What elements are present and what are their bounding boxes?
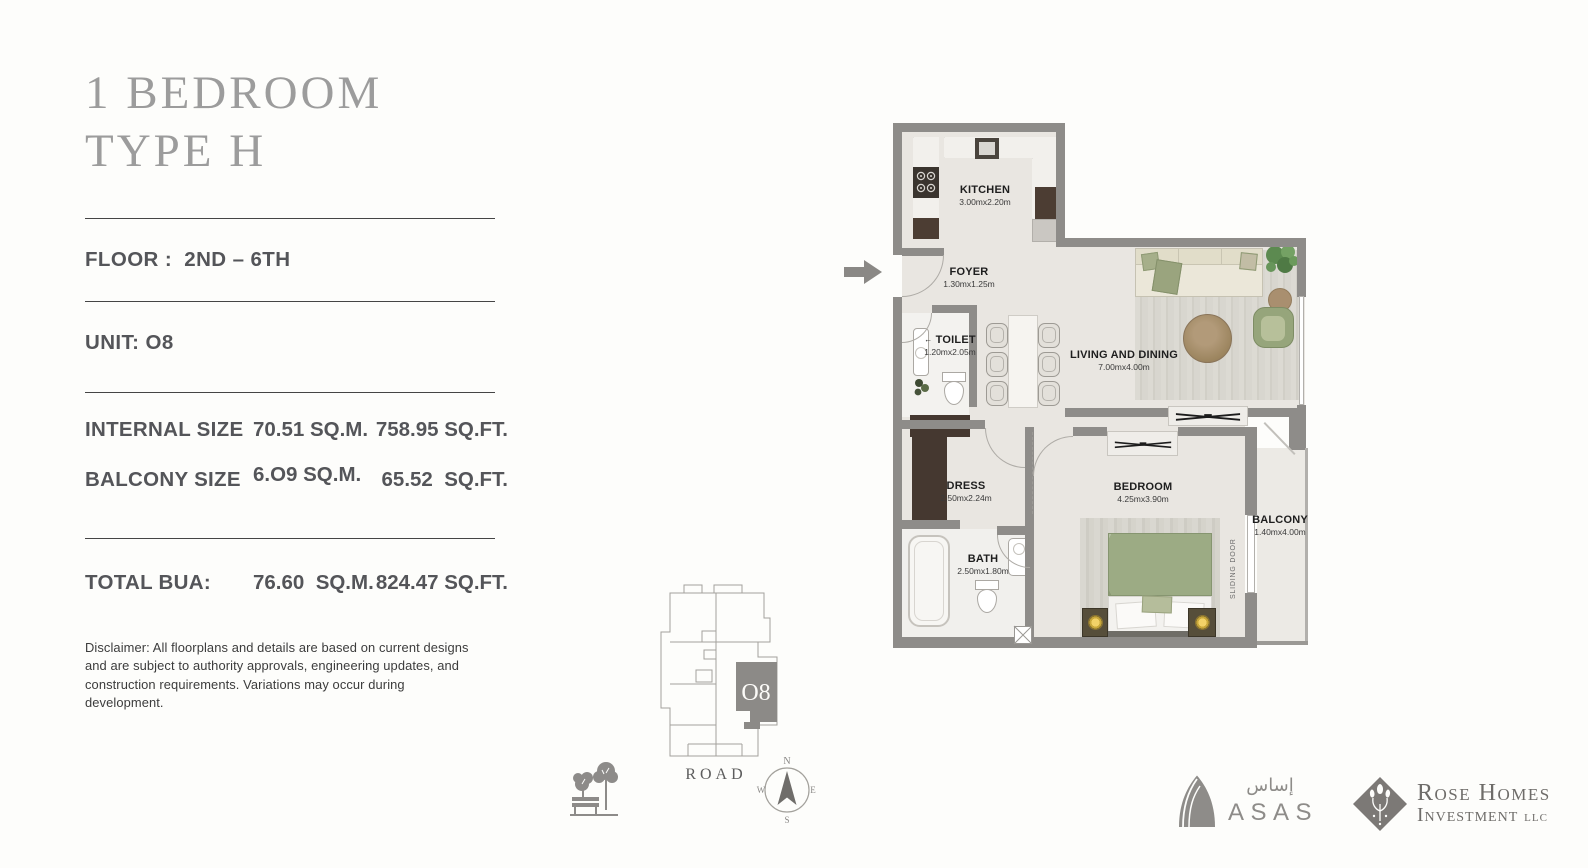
wall <box>1245 593 1257 639</box>
wall <box>1056 238 1305 247</box>
floor-balcony <box>1257 448 1307 641</box>
wall <box>1289 417 1306 450</box>
plant-icon <box>1261 243 1301 287</box>
balcony-edge <box>1257 641 1308 645</box>
wall <box>1056 123 1065 246</box>
asas-arabic-name: إساس <box>1222 776 1318 796</box>
balcony-size-sqft: 65.52 SQ.FT. <box>330 468 508 492</box>
floor-row: FLOOR : 2ND – 6TH <box>85 248 290 272</box>
bed-cushion <box>1142 595 1173 613</box>
tv-console-living <box>1168 406 1248 426</box>
disclaimer-text: Disclaimer: All floorplans and details a… <box>85 639 485 712</box>
divider-line <box>85 392 495 393</box>
nightstand-lamp <box>1082 608 1108 637</box>
asas-latin-name: ASAS <box>1222 799 1318 827</box>
compass-n: N <box>783 756 790 767</box>
compass-icon: N E S W <box>756 752 818 826</box>
balcony-size-label: BALCONY SIZE <box>85 468 241 492</box>
wall <box>1245 427 1257 515</box>
wall <box>1178 427 1245 436</box>
divider-line <box>85 218 495 219</box>
floor-value: 2ND – 6TH <box>184 248 290 271</box>
compass-e: E <box>810 785 816 795</box>
wall <box>893 637 1257 648</box>
room-label-living: LIVING AND DINING 7.00mx4.00m <box>1044 349 1204 372</box>
room-label-dress: DRESS 2.50mx2.24m <box>906 480 1026 503</box>
kitchen-appliance <box>1032 219 1059 242</box>
unit-value: O8 <box>145 331 173 354</box>
asas-logo-text: إساس ASAS <box>1222 776 1318 827</box>
tv-console-bedroom <box>1107 431 1178 456</box>
wall <box>1065 408 1168 417</box>
divider-line <box>85 538 495 539</box>
sofa <box>1135 248 1263 297</box>
shaft-icon <box>1014 626 1032 644</box>
wall <box>1073 427 1107 436</box>
keyplan-unit-number: O8 <box>741 680 770 706</box>
bedroom-door-dash <box>1032 432 1034 514</box>
wall <box>902 520 960 529</box>
room-label-bath: BATH 2.50mx1.80m <box>923 553 1043 576</box>
rose-homes-logo-icon <box>1352 776 1408 832</box>
dining-chair <box>986 381 1008 406</box>
floor-label: FLOOR : <box>85 248 178 271</box>
room-label-balcony: BALCONY 1.40mx4.00m <box>1238 514 1322 537</box>
trees-bench-icon <box>570 758 622 820</box>
room-label-bedroom: BEDROOM 4.25mx3.90m <box>1083 481 1203 504</box>
kitchen-counter-top <box>944 137 1058 158</box>
room-label-toilet: ← TOILET 1.20mx2.05m <box>890 334 1010 357</box>
unit-type-title: 1 BEDROOMTYPE H <box>85 64 382 180</box>
kitchen-sink-basin <box>979 142 995 155</box>
door-swing-icon: ← <box>924 335 932 344</box>
wall <box>1248 408 1305 417</box>
dining-table <box>1008 315 1038 408</box>
internal-size-label: INTERNAL SIZE <box>85 418 243 442</box>
bed-duvet <box>1108 533 1212 596</box>
wall <box>893 123 1065 132</box>
rose-homes-investment: Investment LLC <box>1417 805 1551 829</box>
divider-line <box>85 301 495 302</box>
kitchen-counter-dark-left <box>913 218 939 239</box>
balcony-railing <box>1305 448 1308 641</box>
rose-homes-name: Rose Homes <box>1417 781 1551 805</box>
living-window-glass <box>1299 296 1304 405</box>
dining-chair <box>1038 323 1060 348</box>
internal-size-sqft: 758.95 SQ.FT. <box>330 418 508 442</box>
nightstand-lamp <box>1188 608 1216 637</box>
room-label-kitchen: KITCHEN 3.00mx2.20m <box>925 184 1045 207</box>
floor-plan: KITCHEN 3.00mx2.20m FOYER 1.30mx1.25m ← … <box>880 110 1332 670</box>
entry-arrow-icon <box>844 258 884 286</box>
rose-homes-logo-text: Rose Homes Investment LLC <box>1417 781 1551 829</box>
toilet-plant-icon <box>913 375 931 399</box>
sofa-pillow <box>1239 252 1258 271</box>
room-label-foyer: FOYER 1.30mx1.25m <box>909 266 1029 289</box>
dining-chair <box>1038 381 1060 406</box>
building-key-plan: O8 <box>646 584 786 766</box>
compass-s: S <box>784 815 789 825</box>
wall <box>997 526 1034 535</box>
bathtub <box>908 535 950 627</box>
wall <box>893 123 902 255</box>
toilet-fixture <box>942 372 966 405</box>
tv-icon <box>1114 438 1172 450</box>
bath-toilet <box>975 580 999 613</box>
armchair <box>1253 307 1294 348</box>
total-bua-label: TOTAL BUA: <box>85 571 211 595</box>
sliding-door-label: SLIDING DOOR <box>1230 513 1237 599</box>
total-bua-sqft: 824.47 SQ.FT. <box>330 571 508 595</box>
wall <box>1297 238 1306 297</box>
floorplan-brochure-page: 1 BEDROOMTYPE H FLOOR : 2ND – 6TH UNIT: … <box>0 0 1588 868</box>
unit-label: UNIT: <box>85 331 145 354</box>
rose-homes-llc: LLC <box>1524 812 1548 824</box>
sofa-throw <box>1152 259 1183 295</box>
asas-logo-icon <box>1176 775 1219 828</box>
compass-w: W <box>757 785 766 795</box>
tv-icon <box>1175 410 1241 422</box>
unit-row: UNIT: O8 <box>85 331 174 355</box>
wall <box>902 420 985 429</box>
